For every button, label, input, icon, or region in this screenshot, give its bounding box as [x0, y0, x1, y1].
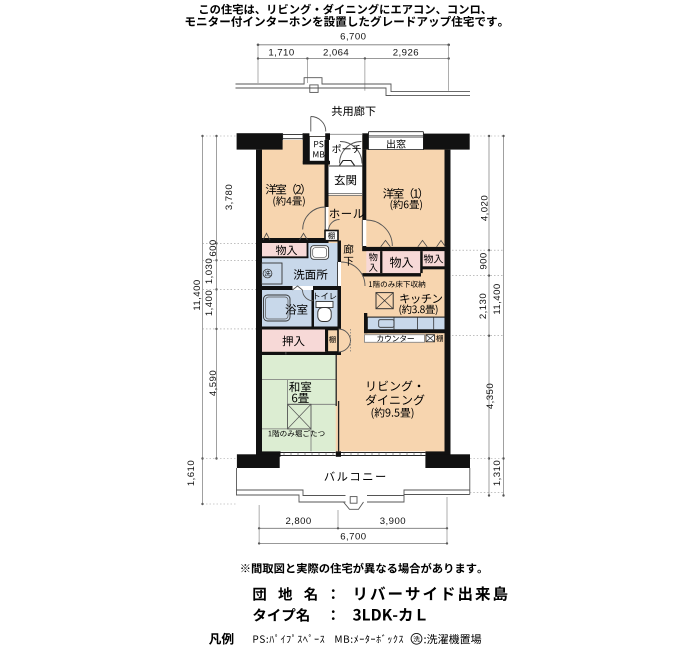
- svg-text:1,610: 1,610: [186, 460, 197, 486]
- svg-text:1,030: 1,030: [204, 258, 215, 284]
- svg-text:3,780: 3,780: [224, 184, 235, 210]
- svg-text:11,400: 11,400: [492, 283, 503, 314]
- svg-text:6,700: 6,700: [340, 32, 366, 43]
- svg-text:1,710: 1,710: [268, 47, 294, 58]
- svg-text:4,350: 4,350: [485, 383, 496, 409]
- svg-text:1,310: 1,310: [492, 460, 503, 486]
- svg-text:600: 600: [208, 239, 219, 256]
- svg-text:11,400: 11,400: [192, 279, 203, 310]
- svg-text:2,064: 2,064: [323, 47, 349, 58]
- svg-text:4,020: 4,020: [479, 195, 490, 221]
- svg-text:3,900: 3,900: [380, 516, 406, 527]
- svg-text:4,590: 4,590: [208, 370, 219, 396]
- svg-text:6,700: 6,700: [340, 532, 366, 543]
- svg-text:900: 900: [478, 252, 489, 269]
- svg-text:1,400: 1,400: [204, 290, 215, 316]
- svg-text:2,926: 2,926: [393, 47, 419, 58]
- svg-text:2,130: 2,130: [478, 293, 489, 319]
- svg-text:2,800: 2,800: [285, 516, 311, 527]
